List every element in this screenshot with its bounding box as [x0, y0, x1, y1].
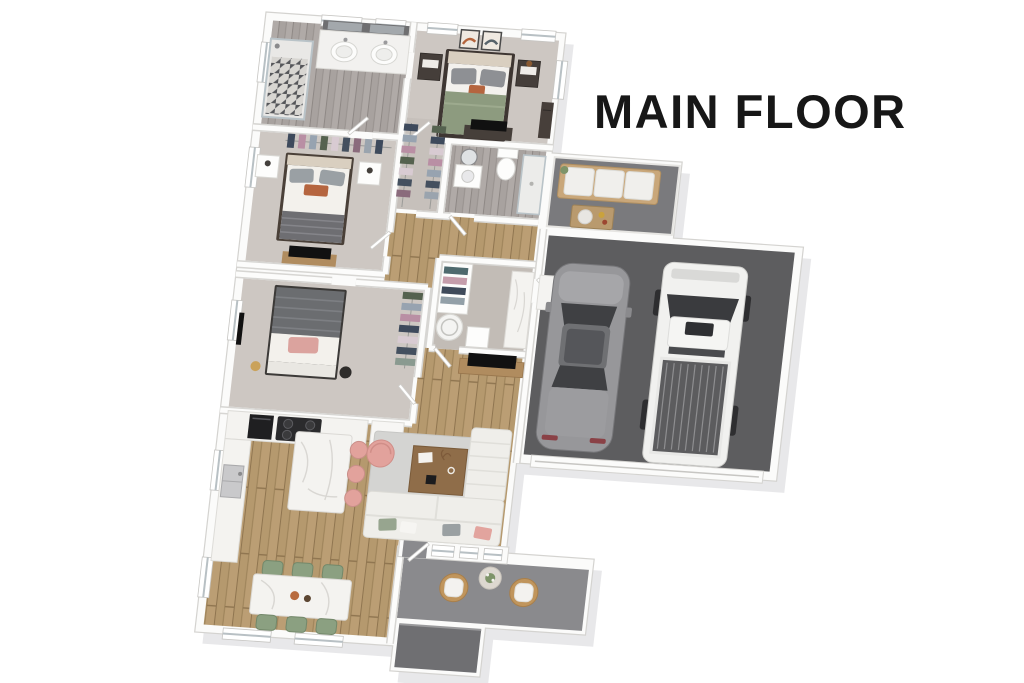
- kitchen-sink-icon: [220, 465, 244, 498]
- pillow-icon: [399, 521, 417, 534]
- side-mirror: [545, 302, 552, 312]
- queen-bed-gray: [265, 285, 347, 380]
- truck-bed: [651, 358, 730, 457]
- living-room: [357, 421, 512, 547]
- entry-step: [394, 624, 481, 673]
- side-mirror: [625, 307, 632, 317]
- pillow-icon: [442, 524, 460, 536]
- window: [427, 22, 458, 35]
- double-vanity: [316, 20, 412, 74]
- nightstand: [418, 53, 443, 81]
- decor-box-icon: [425, 475, 436, 485]
- sunroof: [685, 322, 714, 337]
- nightstand: [357, 162, 382, 186]
- pillow-icon: [378, 518, 396, 531]
- outdoor-coffee-table: [570, 205, 615, 230]
- nightstand: [516, 60, 541, 88]
- tiled-shower: [262, 39, 313, 120]
- nightstand: [255, 155, 280, 179]
- floor-plan-rendering: [0, 0, 1024, 683]
- window: [521, 29, 556, 42]
- cabinet: [465, 327, 489, 349]
- trunk: [544, 387, 610, 439]
- rear-window: [552, 365, 611, 391]
- queen-bed-white: [276, 153, 354, 246]
- linen-shelf: [437, 262, 473, 314]
- oven-icon: [247, 414, 274, 440]
- kitchen-island: [287, 431, 352, 513]
- books-icon: [418, 452, 432, 463]
- tv-console: [281, 245, 337, 267]
- hood: [557, 271, 624, 305]
- outdoor-sofa: [557, 164, 661, 205]
- floor-plan-page: MAIN FLOOR: [0, 0, 1024, 683]
- coffee-table: [408, 446, 467, 496]
- dining-table: [249, 574, 352, 621]
